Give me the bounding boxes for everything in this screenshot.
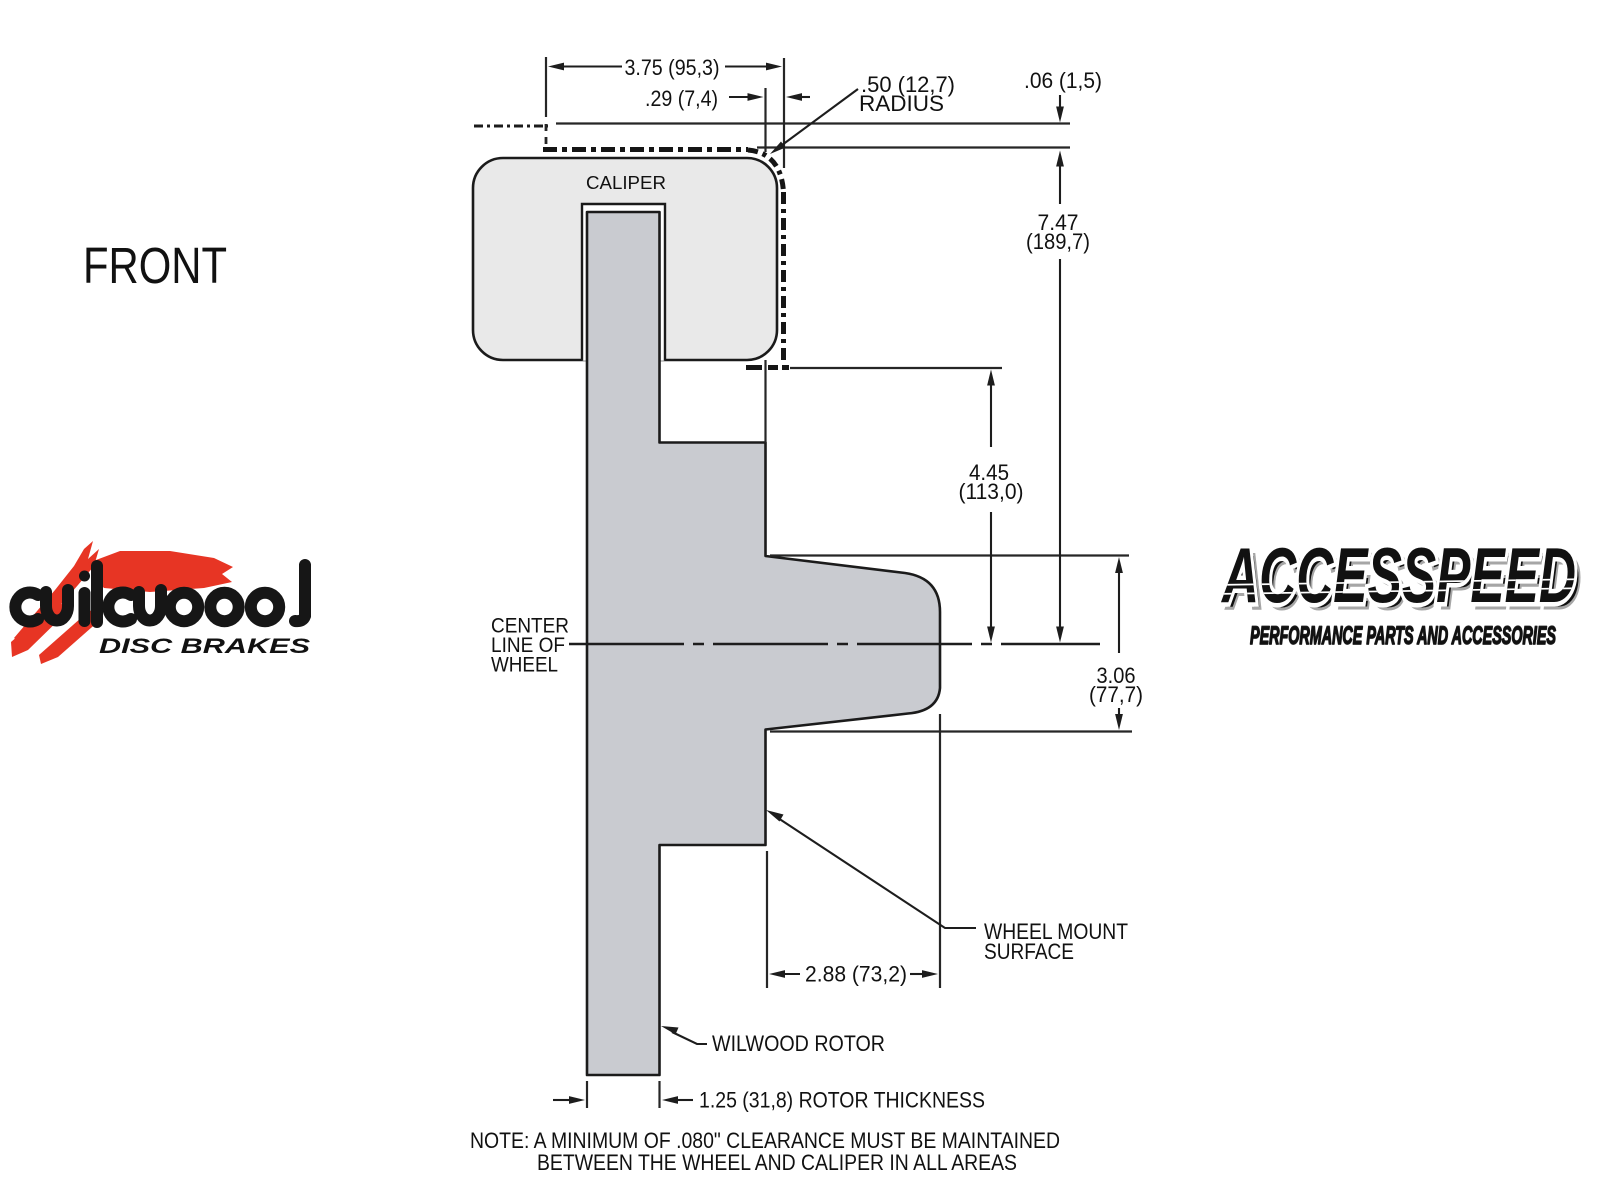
svg-text:SURFACE: SURFACE [984, 939, 1074, 964]
svg-text:1.25 (31,8) ROTOR THICKNESS: 1.25 (31,8) ROTOR THICKNESS [699, 1088, 985, 1113]
svg-text:RADIUS: RADIUS [859, 91, 944, 116]
svg-text:2.88 (73,2): 2.88 (73,2) [805, 962, 907, 987]
svg-text:ACCESSPEED: ACCESSPEED [1221, 531, 1576, 619]
svg-text:(77,7): (77,7) [1089, 682, 1143, 707]
svg-text:CALIPER: CALIPER [586, 172, 666, 193]
svg-text:.29 (7,4): .29 (7,4) [645, 86, 718, 111]
svg-text:WHEEL: WHEEL [491, 654, 558, 677]
svg-text:BETWEEN THE WHEEL AND CALIPER: BETWEEN THE WHEEL AND CALIPER IN ALL ARE… [537, 1150, 1017, 1175]
svg-text:(113,0): (113,0) [959, 479, 1024, 504]
svg-text:PERFORMANCE PARTS AND ACCESSOR: PERFORMANCE PARTS AND ACCESSORIES [1250, 622, 1556, 650]
svg-text:FRONT: FRONT [83, 237, 227, 294]
svg-text:WILWOOD ROTOR: WILWOOD ROTOR [712, 1031, 885, 1056]
svg-text:3.75 (95,3): 3.75 (95,3) [625, 55, 720, 80]
svg-text:(189,7): (189,7) [1026, 229, 1090, 254]
svg-text:.06 (1,5): .06 (1,5) [1024, 68, 1102, 93]
svg-text:DISC BRAKES: DISC BRAKES [99, 635, 310, 658]
